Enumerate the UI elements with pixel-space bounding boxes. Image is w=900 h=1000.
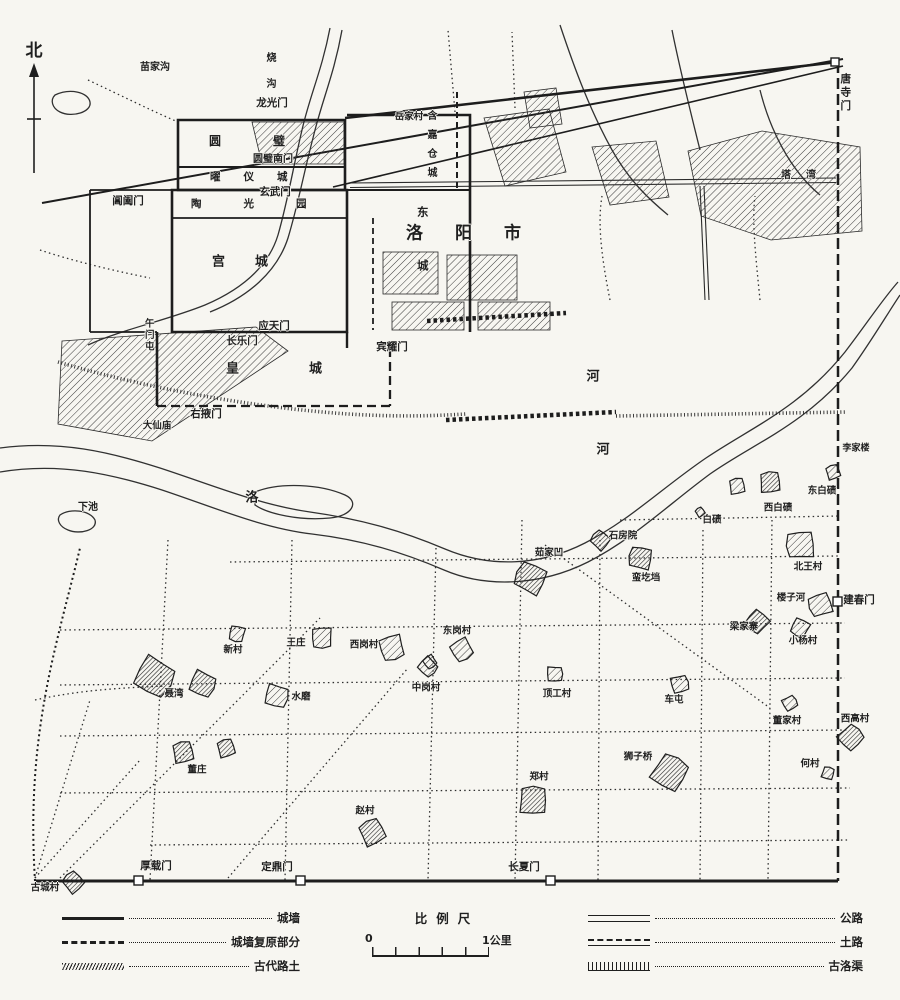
scale-start-label: 0 (365, 932, 373, 945)
scale-bar-title: 比例尺 (352, 908, 542, 927)
label-taoguangyuan: 陶光园 (191, 199, 349, 210)
label-changlemen: 长乐门 (226, 336, 258, 347)
label-guchengcun: 古城村 (31, 883, 60, 893)
label-miaojiagou: 苗家沟 (140, 63, 170, 73)
label-binyaomen: 宾耀门 (376, 342, 408, 353)
label-zhaocun: 赵村 (355, 806, 374, 816)
legend-row-wall: 城墙 (62, 906, 300, 930)
luoyang-site-map: 北 苗家沟烧沟龙光门圆璧圆璧南门曜仪城玄武门阊阖门陶光园岳家村含嘉仓城塔湾唐寺门… (0, 0, 900, 1000)
label-xigangcun: 西岗村 (350, 640, 379, 650)
label-beiwangcun: 北王村 (794, 562, 823, 572)
legend-row-dirt-road: 土路 (588, 930, 863, 954)
label-zhengcun: 郑村 (529, 772, 548, 782)
legend-leader (655, 918, 835, 919)
legend-symbol-wall-restored (62, 941, 124, 944)
label-mangedang: 蛮圪垱 (632, 573, 661, 583)
legend-symbol-highway (588, 915, 650, 922)
label-xincun: 新村 (223, 645, 242, 655)
label-huangcheng: 皇城 (226, 363, 392, 376)
legend-label-ancient-road: 古代路土 (254, 958, 300, 974)
label-xuanwumen: 玄武门 (259, 187, 291, 198)
legend-leader (129, 918, 272, 919)
label-shuimo: 水磨 (291, 692, 310, 702)
scale-end-label: 1公里 (482, 932, 512, 948)
label-shiziqiao: 狮子桥 (624, 752, 653, 762)
label-dongbaiqi: 东白碛 (808, 486, 837, 496)
label-liangjiazhai: 梁家寨 (730, 622, 759, 632)
label-dongzhuang: 董庄 (187, 765, 206, 775)
legend-label-highway: 公路 (840, 910, 863, 926)
label-niewan: 聂湾 (164, 689, 183, 699)
label-yaoyicheng: 曜仪城 (210, 172, 311, 183)
legend-row-ancient-road: 古代路土 (62, 954, 300, 978)
label-luoyang-shi: 洛阳市 (406, 226, 553, 243)
label-xiaoyangcun: 小杨村 (789, 636, 818, 646)
legend-row-ancient-luo-canal: 古洛渠 (588, 954, 863, 978)
label-donggangcun: 东岗村 (443, 626, 472, 636)
label-longguangmen: 龙光门 (256, 98, 288, 109)
map-labels-layer: 苗家沟烧沟龙光门圆璧圆璧南门曜仪城玄武门阊阖门陶光园岳家村含嘉仓城塔湾唐寺门宫城… (0, 0, 900, 1000)
label-yuanbicheng: 圆璧 (209, 135, 337, 147)
legend-symbol-ancient-road (62, 963, 124, 970)
label-luo-river-char-he-2: 河 (596, 444, 609, 457)
label-yuanbi-nanmen: 圆璧南门 (253, 155, 293, 165)
legend: 城墙 城墙复原部分 古代路土 比例尺 0 1公里 (0, 898, 900, 998)
scale-bar: 比例尺 0 1公里 (352, 908, 542, 963)
legend-leader (129, 966, 249, 967)
label-jianchunmen: 建春门 (843, 595, 875, 606)
label-wangzhuang: 王庄 (286, 638, 305, 648)
label-hanjia-cangcheng: 含嘉仓城 (425, 110, 435, 186)
label-baiqi: 白碛 (702, 515, 721, 525)
label-tangsimen: 唐寺门 (840, 73, 851, 114)
label-shifangyuan: 石房院 (609, 531, 638, 541)
label-hecun: 何村 (800, 759, 819, 769)
legend-leader (129, 942, 226, 943)
legend-leader (655, 966, 824, 967)
label-louzihe: 楼子河 (777, 593, 806, 603)
legend-row-wall-restored: 城墙复原部分 (62, 930, 300, 954)
legend-label-dirt-road: 土路 (840, 934, 863, 950)
label-xiachi: 下池 (78, 503, 98, 513)
legend-label-ancient-luo-canal: 古洛渠 (829, 958, 864, 974)
label-changxiamen: 长夏门 (508, 862, 540, 873)
label-zhonggangcun: 中岗村 (412, 683, 441, 693)
label-daxianmiao: 大仙庙 (143, 421, 172, 431)
label-xibaiqi: 西白碛 (764, 503, 793, 513)
legend-left-column: 城墙 城墙复原部分 古代路土 (62, 906, 300, 978)
legend-right-column: 公路 土路 古洛渠 (588, 906, 863, 978)
legend-label-wall-restored: 城墙复原部分 (231, 934, 300, 950)
label-wumentun: 午门屯 (143, 318, 153, 353)
label-chetun: 车屯 (664, 695, 683, 705)
label-lijialou: 李家楼 (842, 445, 869, 454)
label-youyemen: 右掖门 (190, 409, 222, 420)
legend-symbol-ancient-luo-canal (588, 962, 650, 971)
label-dinggongcun: 顶工村 (543, 689, 572, 699)
legend-symbol-dirt-road (588, 939, 650, 946)
label-tawan: 塔湾 (781, 171, 831, 181)
legend-symbol-wall (62, 917, 124, 920)
legend-label-wall: 城墙 (277, 910, 300, 926)
label-changhemen: 阊阖门 (112, 196, 144, 207)
label-dongjiacun: 董家村 (773, 716, 802, 726)
scale-bar-ticks (372, 947, 489, 957)
label-luo-river-char-luo: 洛 (245, 492, 258, 505)
legend-row-highway: 公路 (588, 906, 863, 930)
label-dongcheng: 东城 (416, 206, 428, 313)
label-yuejiacun: 岳家村 (395, 112, 424, 122)
label-yingtianmen: 应天门 (258, 321, 290, 332)
label-luo-river-char-he-1: 河 (586, 371, 599, 384)
legend-leader (655, 942, 835, 943)
label-gongcheng: 宫城 (212, 256, 298, 269)
label-xigaocun: 西高村 (841, 714, 870, 724)
label-houzaimen: 厚载门 (140, 861, 172, 872)
label-dingdingmen: 定鼎门 (261, 862, 293, 873)
scale-bar-ruler: 0 1公里 (352, 935, 542, 963)
label-rujiawa: 茹家凹 (535, 548, 564, 558)
